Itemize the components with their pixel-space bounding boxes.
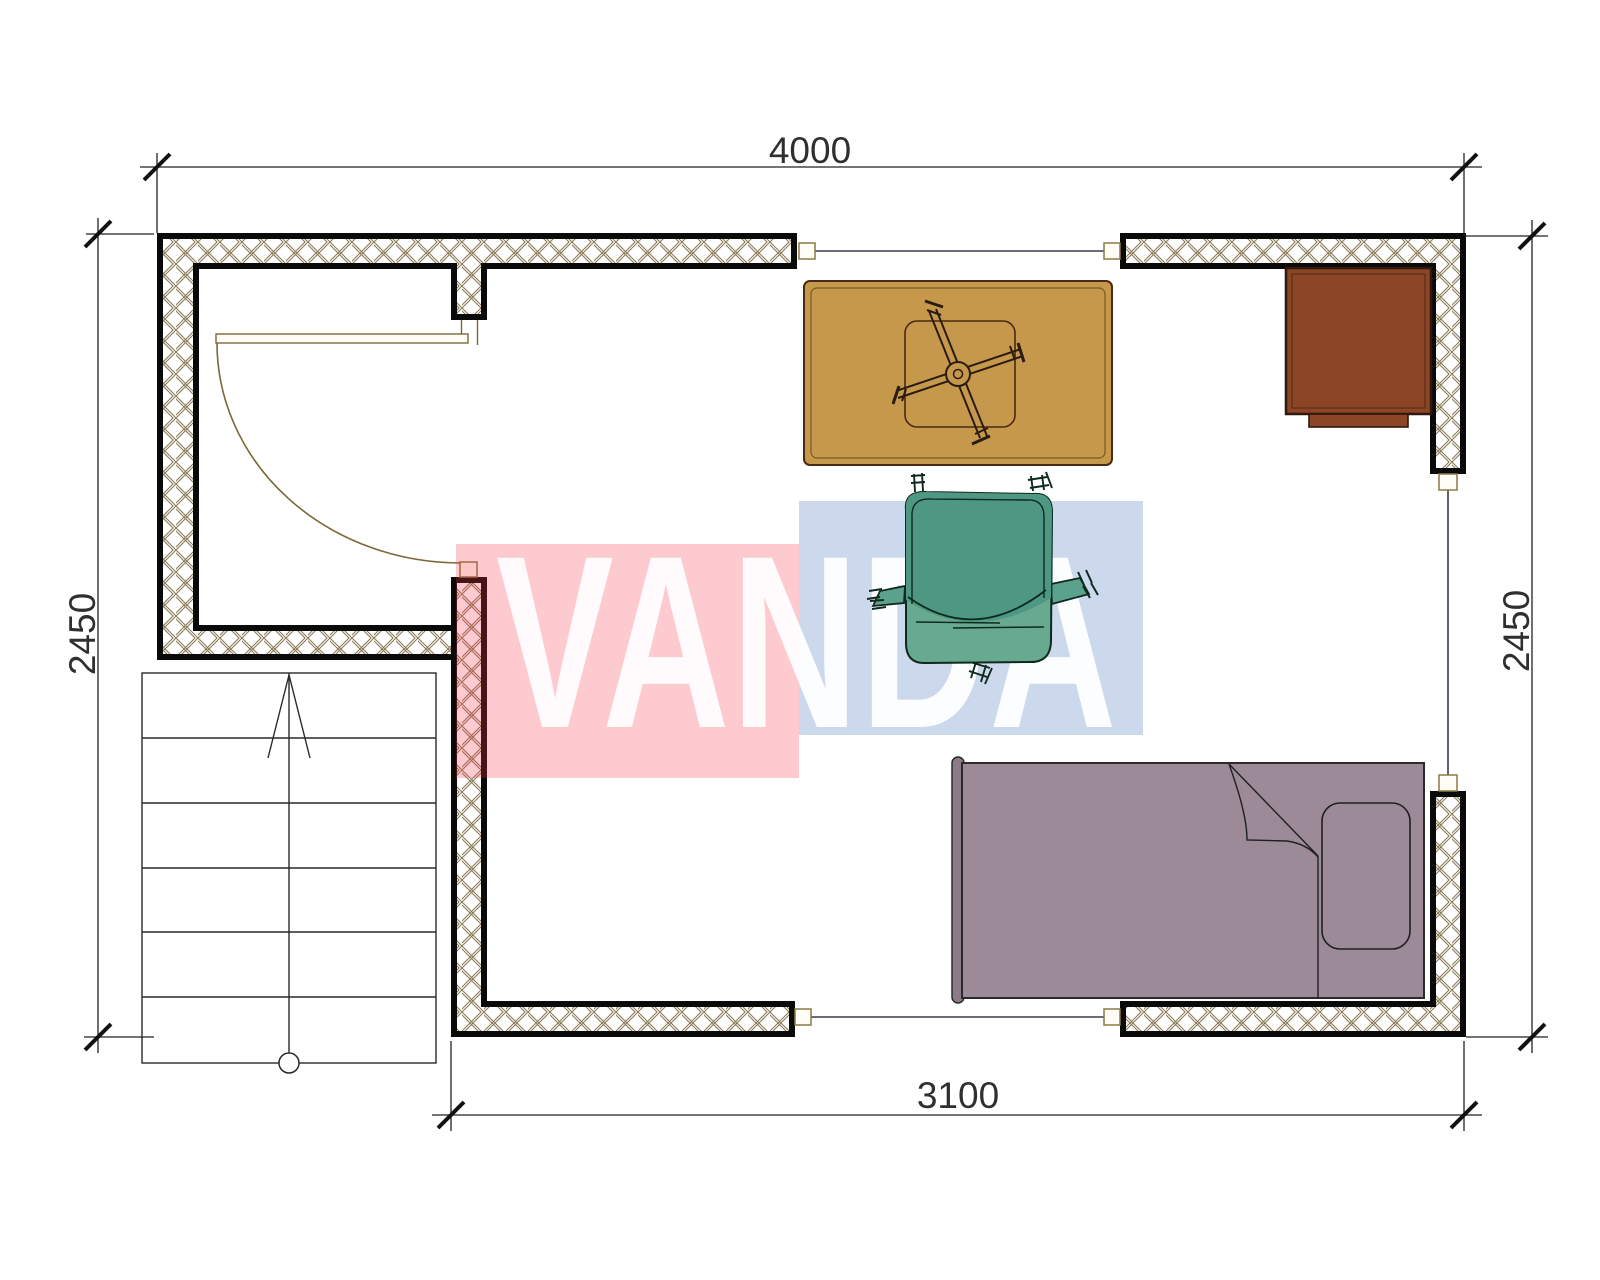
svg-text:3100: 3100 xyxy=(917,1075,999,1116)
svg-text:4000: 4000 xyxy=(769,130,851,171)
svg-text:2450: 2450 xyxy=(62,593,103,675)
svg-text:2450: 2450 xyxy=(1496,590,1537,672)
